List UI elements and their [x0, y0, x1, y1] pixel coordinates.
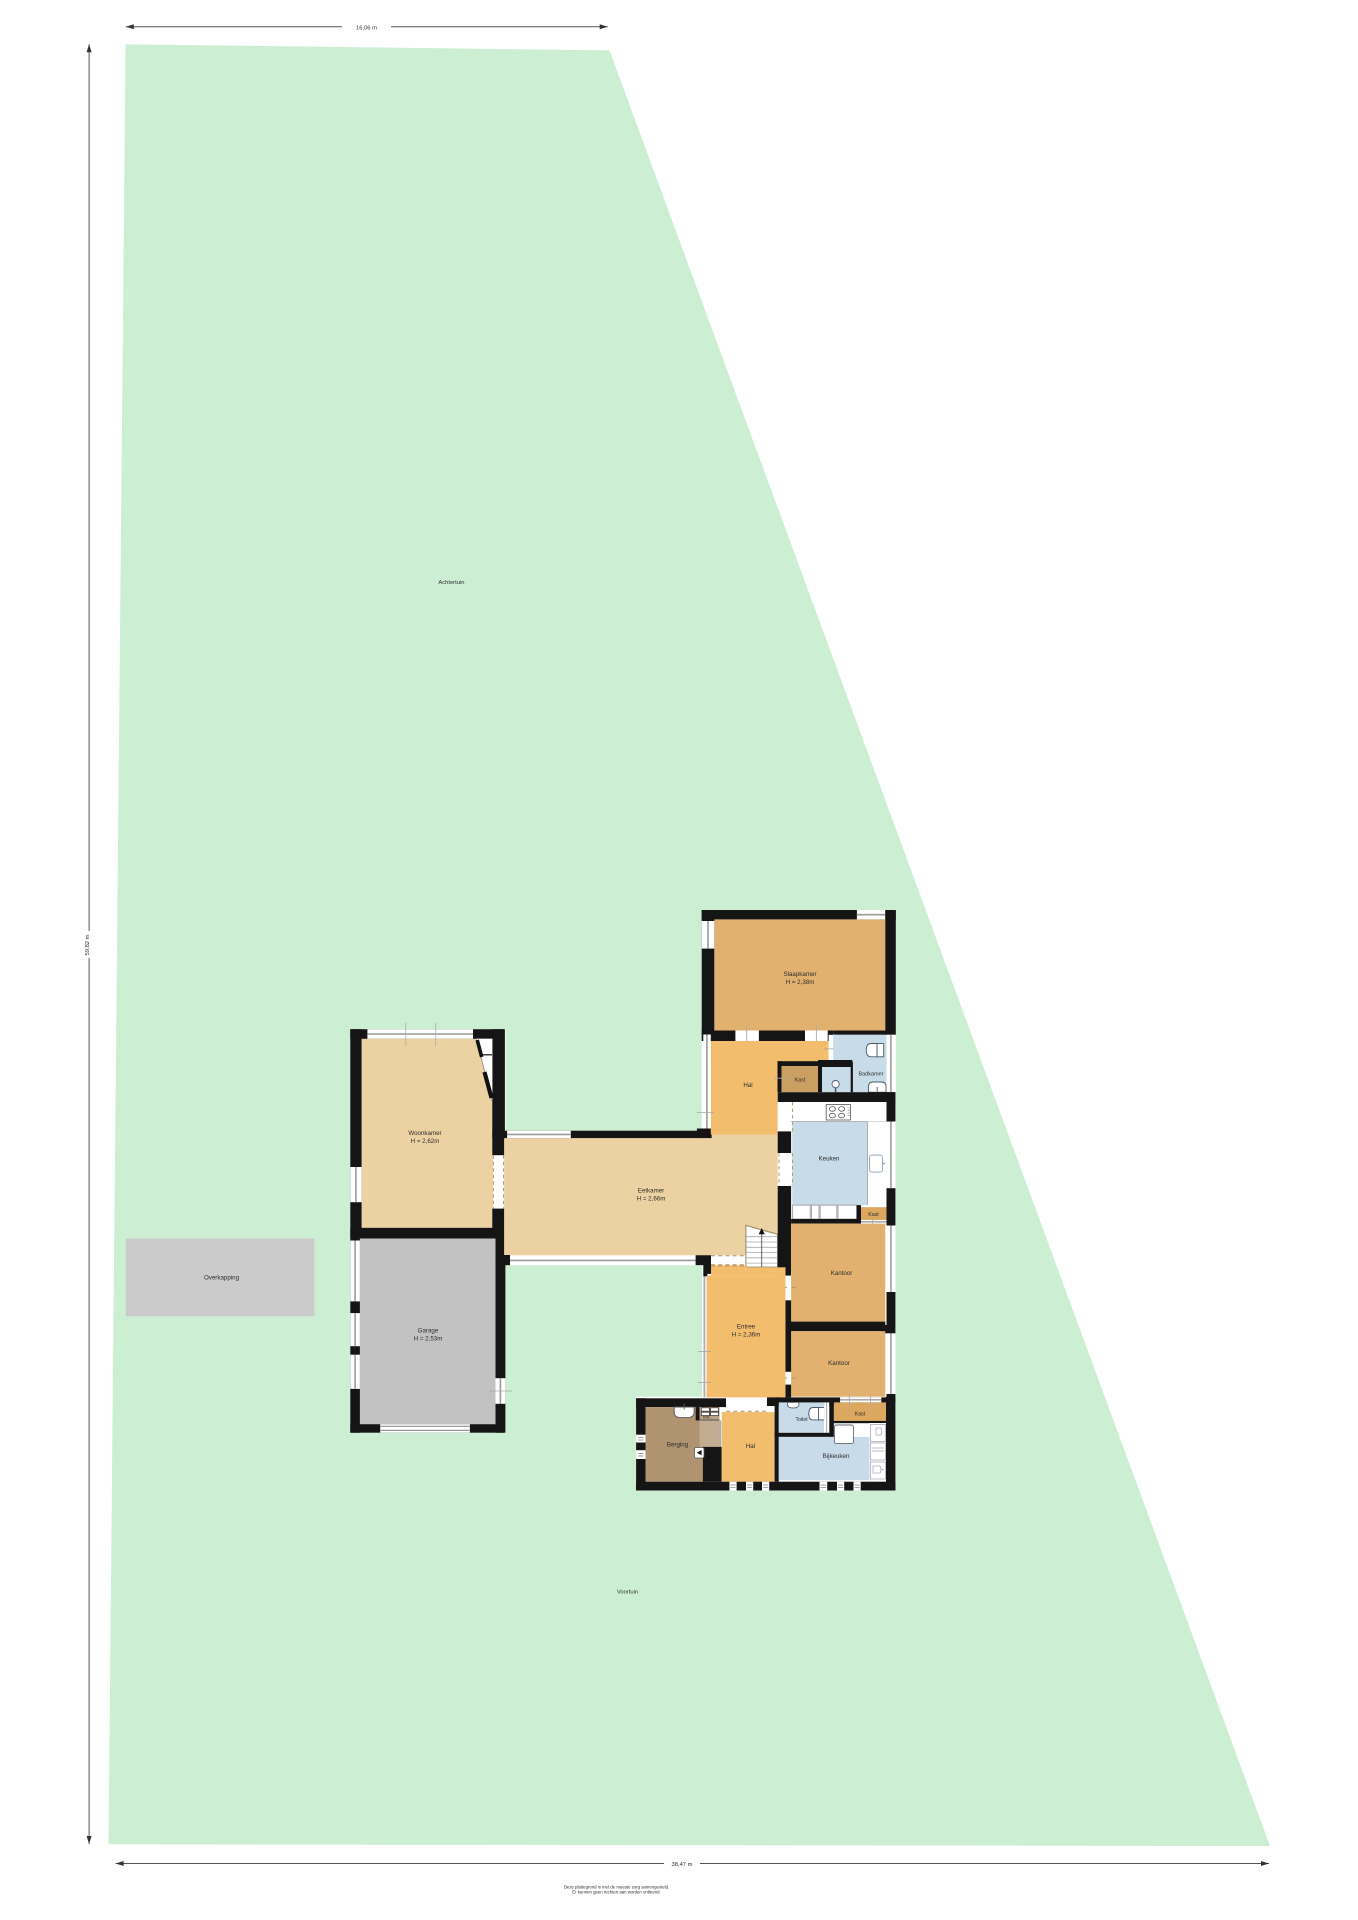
svg-text:Voortuin: Voortuin — [617, 1590, 638, 1596]
svg-text:Badkamer: Badkamer — [858, 1072, 883, 1078]
svg-text:38,47 m: 38,47 m — [672, 1862, 693, 1868]
svg-text:Hal: Hal — [746, 1443, 755, 1450]
svg-text:Keuken: Keuken — [819, 1156, 841, 1163]
svg-text:Kantoor: Kantoor — [828, 1360, 850, 1367]
svg-text:Woonkamer: Woonkamer — [408, 1130, 441, 1137]
svg-text:Entree: Entree — [737, 1324, 756, 1331]
svg-text:MK: MK — [703, 1414, 711, 1419]
svg-text:H = 2,38m: H = 2,38m — [786, 979, 815, 986]
svg-text:H = 2,36m: H = 2,36m — [732, 1332, 761, 1339]
svg-text:59,82 m: 59,82 m — [85, 934, 91, 955]
svg-text:Toilet: Toilet — [795, 1417, 808, 1423]
svg-text:Kast: Kast — [855, 1412, 866, 1418]
svg-text:H = 2,62m: H = 2,62m — [411, 1138, 440, 1145]
svg-text:Kantoor: Kantoor — [831, 1270, 853, 1277]
svg-text:Overkapping: Overkapping — [204, 1275, 240, 1282]
svg-text:Bijkeuken: Bijkeuken — [823, 1453, 850, 1460]
svg-text:Garage: Garage — [418, 1328, 439, 1335]
svg-text:Eetkamer: Eetkamer — [638, 1188, 664, 1195]
svg-text:16,06 m: 16,06 m — [356, 25, 377, 31]
svg-text:Slaapkamer: Slaapkamer — [783, 971, 816, 978]
svg-text:H = 2,53m: H = 2,53m — [414, 1336, 443, 1343]
svg-text:Kast: Kast — [795, 1078, 806, 1084]
svg-text:Berging: Berging — [667, 1442, 689, 1449]
svg-text:Er kunnen geen rechten aan wor: Er kunnen geen rechten aan worden ontlee… — [572, 1890, 660, 1895]
svg-text:Kast: Kast — [868, 1212, 879, 1218]
svg-text:Hal: Hal — [743, 1082, 752, 1089]
svg-text:H = 2,66m: H = 2,66m — [637, 1196, 666, 1203]
svg-text:Achtertuin: Achtertuin — [438, 580, 464, 586]
